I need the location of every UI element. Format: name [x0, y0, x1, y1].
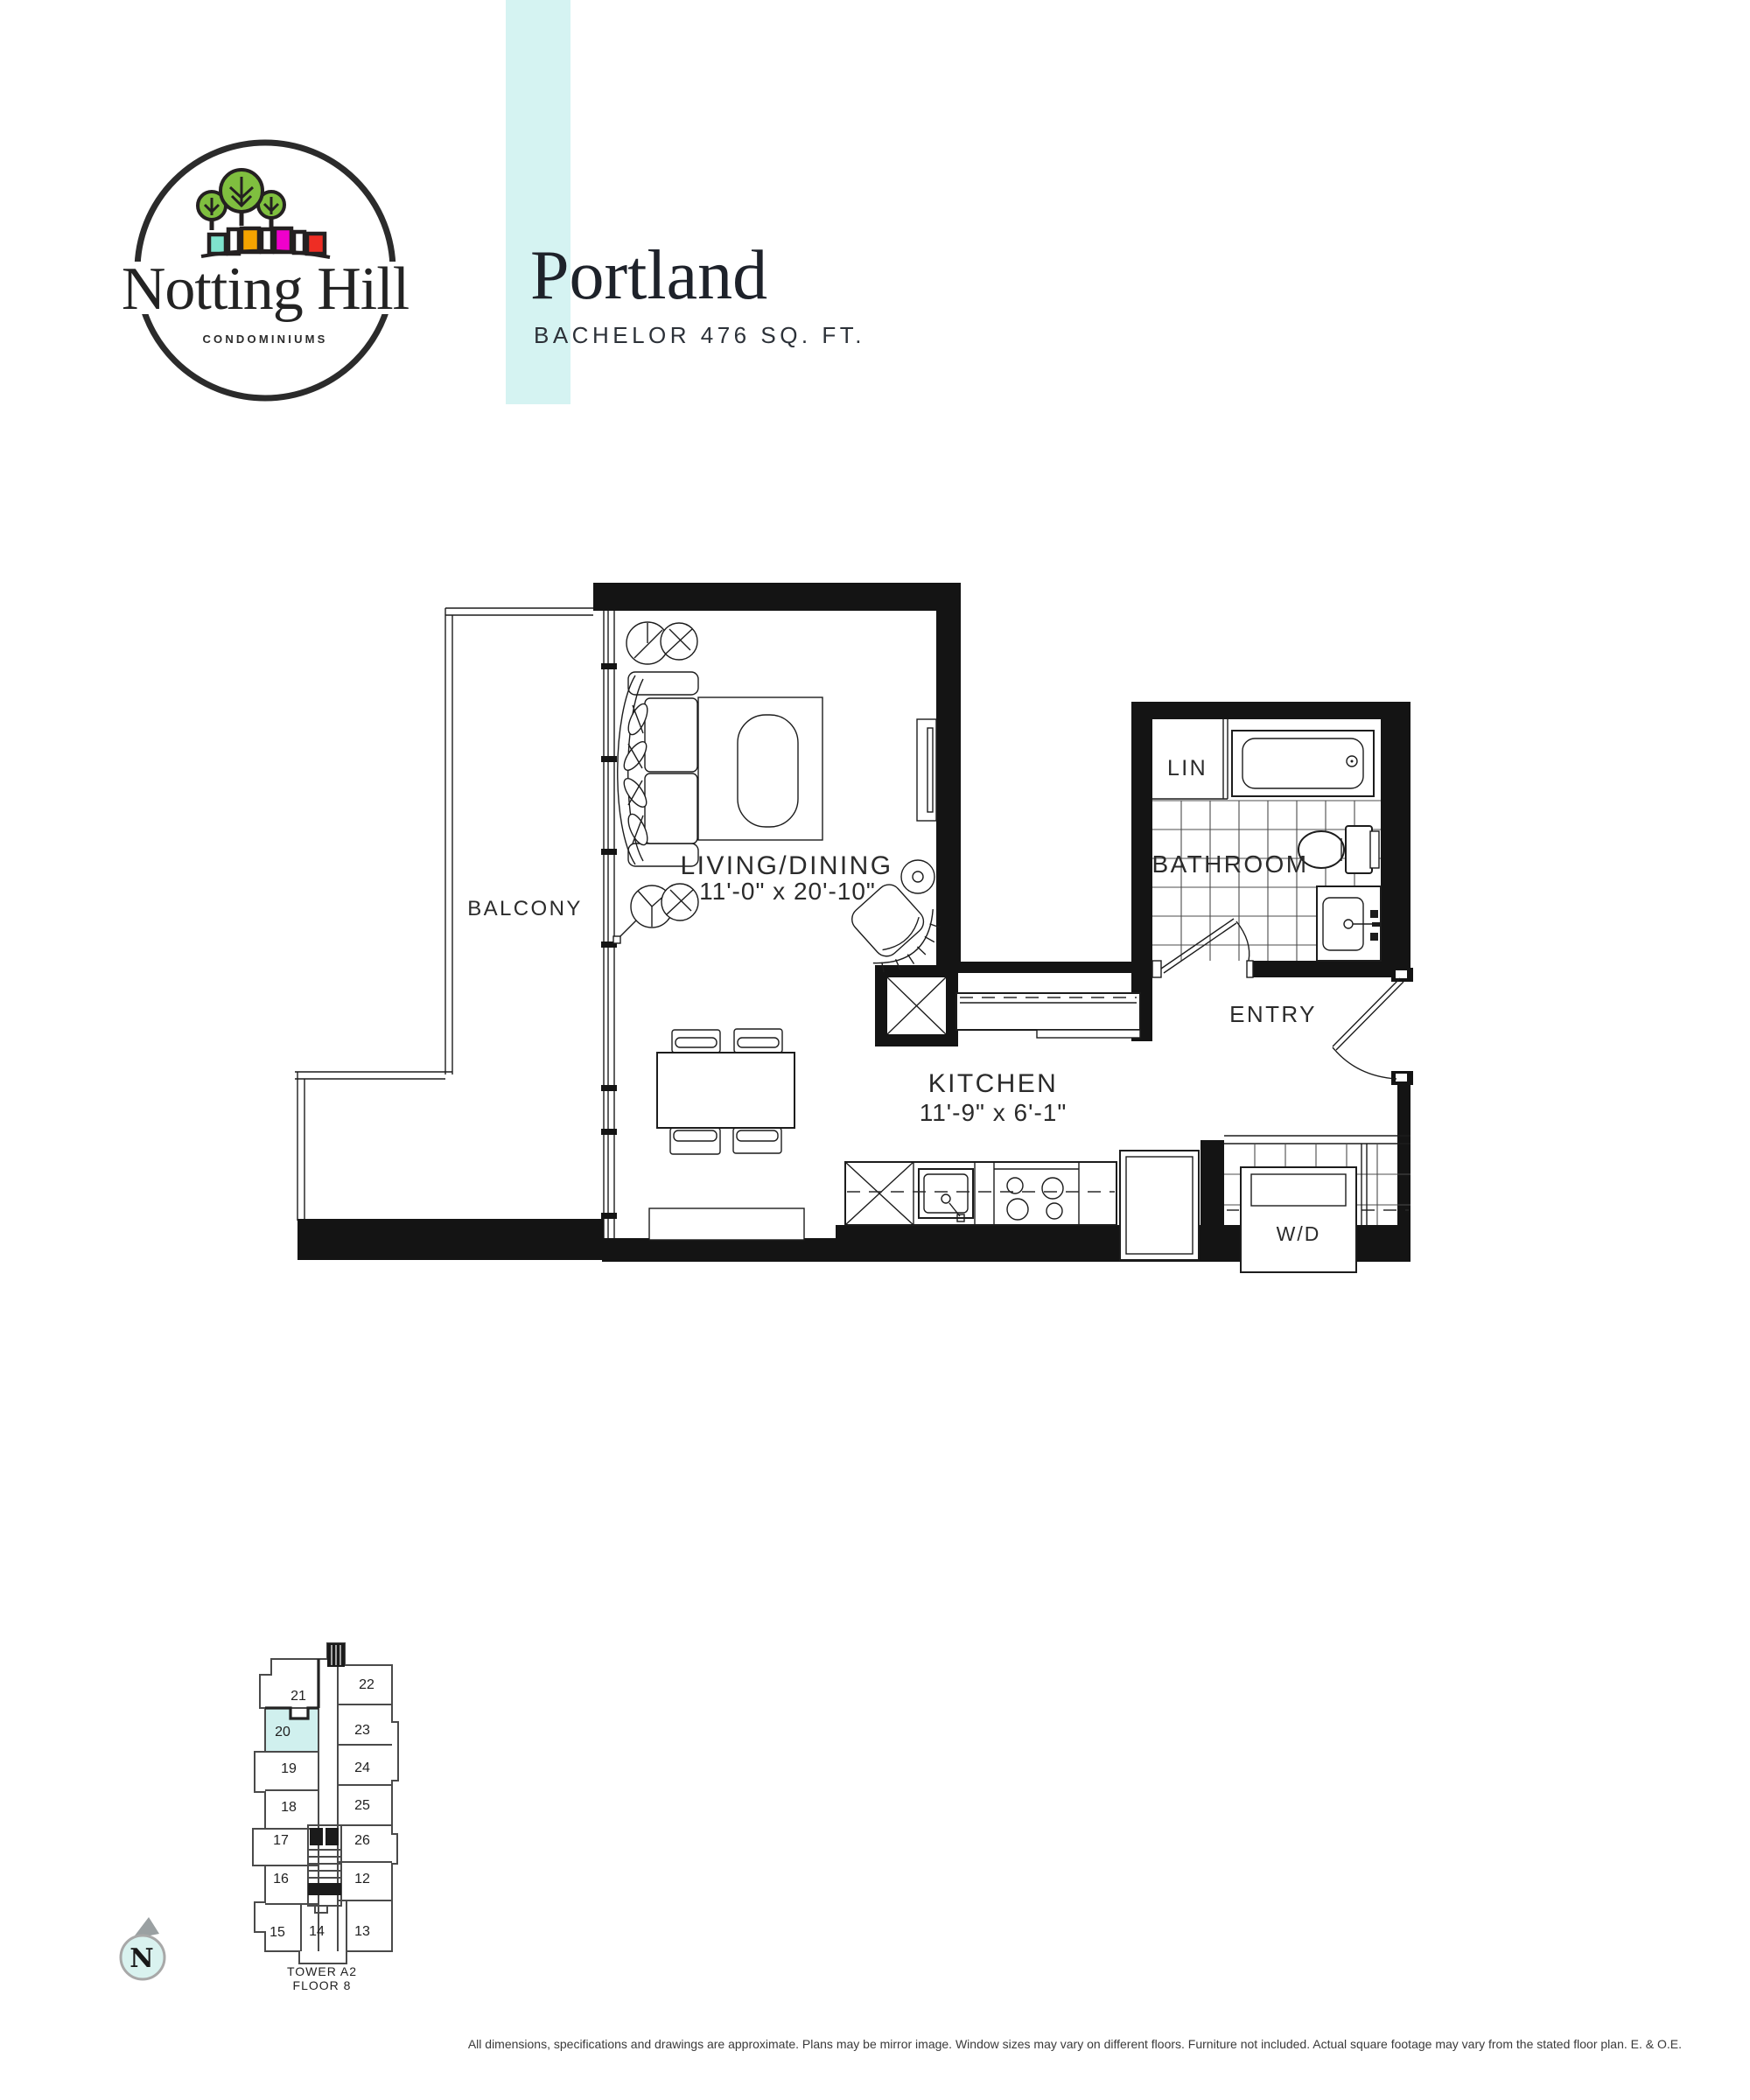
keyplan-unit-label: 15 [269, 1925, 285, 1940]
keyplan-unit-label: 23 [354, 1723, 370, 1738]
keyplan-unit-label: 18 [281, 1800, 297, 1815]
bench-icon [649, 1208, 804, 1240]
sofa-icon [618, 672, 698, 866]
keyplan-unit-label: 20 [275, 1725, 290, 1739]
plan-canvas: Notting Hill CONDOMINIUMS Portland BACHE… [0, 0, 1750, 2100]
keyplan-unit-label: 25 [354, 1798, 370, 1813]
side-table-icon [901, 860, 934, 893]
living-furniture [613, 622, 952, 984]
laundry-label: W/D [1277, 1222, 1321, 1245]
keyplan-unit-label: 24 [354, 1760, 370, 1775]
keyplan-unit-label: 19 [281, 1761, 297, 1776]
kitchen-dims: 11'-9" x 6'-1" [920, 1099, 1067, 1126]
floorplan-drawing: W/D LIN [295, 583, 1413, 1272]
area-rug-icon [698, 697, 822, 840]
plan-spec: BACHELOR 476 SQ. FT. [534, 322, 865, 348]
disclaimer-text: All dimensions, specifications and drawi… [468, 2037, 1682, 2051]
fridge-icon [1120, 1151, 1199, 1260]
linen-closet: LIN [1152, 719, 1228, 799]
bistro-chairs-bottom-icon [613, 884, 698, 943]
bathtub-icon [1232, 731, 1374, 796]
bathroom-door-icon [1161, 919, 1249, 973]
keyplan-elevator [327, 1643, 345, 1667]
logo-tagline: CONDOMINIUMS [202, 332, 327, 346]
buildings-icon [201, 228, 330, 257]
linen-label: LIN [1167, 756, 1207, 780]
keyplan-tower-label: TOWER A2 [287, 1964, 357, 1978]
keyplan-core [308, 1825, 341, 1913]
logo: Notting Hill CONDOMINIUMS [116, 143, 414, 398]
washer-dryer-icon [1241, 1167, 1356, 1272]
dining-table-icon [657, 1053, 794, 1128]
toilet-icon [1298, 826, 1379, 873]
bathroom-interior: LIN [1152, 719, 1381, 973]
column [875, 965, 958, 1046]
page-title: Portland [530, 237, 767, 314]
keyplan-floor-label: FLOOR 8 [293, 1978, 352, 1992]
corridor-counter [956, 993, 1140, 1038]
north-arrow: N [121, 1917, 164, 1979]
keyplan-outline [253, 1643, 398, 1963]
trees-icon [198, 170, 284, 230]
kitchen-label: KITCHEN [928, 1069, 1058, 1098]
dining-set [649, 1029, 804, 1240]
title-block: Portland BACHELOR 476 SQ. FT. [530, 237, 865, 348]
living-label: LIVING/DINING [681, 851, 893, 880]
entry-label: ENTRY [1229, 1001, 1317, 1027]
vanity-icon [1317, 886, 1381, 961]
keyplan-unit-label: 22 [359, 1677, 374, 1692]
keyplan-unit-label: 14 [309, 1924, 325, 1939]
keyplan-unit-label: 16 [273, 1872, 289, 1886]
keyplan-unit-label: 17 [273, 1833, 289, 1848]
keyplan-drawing: 212019181716151413122625242322 TOWER A2 … [253, 1643, 398, 1992]
entry-door-icon [1333, 978, 1403, 1079]
bistro-chairs-top-icon [626, 622, 697, 664]
living-dims: 11'-0" x 20'-10" [699, 878, 876, 905]
tv-console-icon [917, 719, 936, 821]
bathroom-label: BATHROOM [1152, 850, 1309, 878]
keyplan-unit-label: 13 [354, 1924, 370, 1939]
balcony-label: BALCONY [467, 897, 583, 920]
north-label: N [129, 1943, 153, 1974]
keyplan-unit-label: 21 [290, 1689, 306, 1704]
floorplan-page: Notting Hill CONDOMINIUMS Portland BACHE… [0, 0, 1750, 2100]
keyplan-unit-label: 26 [354, 1833, 370, 1848]
logo-name: Notting Hill [122, 255, 409, 323]
window-wall [601, 611, 617, 1238]
keyplan-unit-label: 12 [354, 1872, 370, 1886]
